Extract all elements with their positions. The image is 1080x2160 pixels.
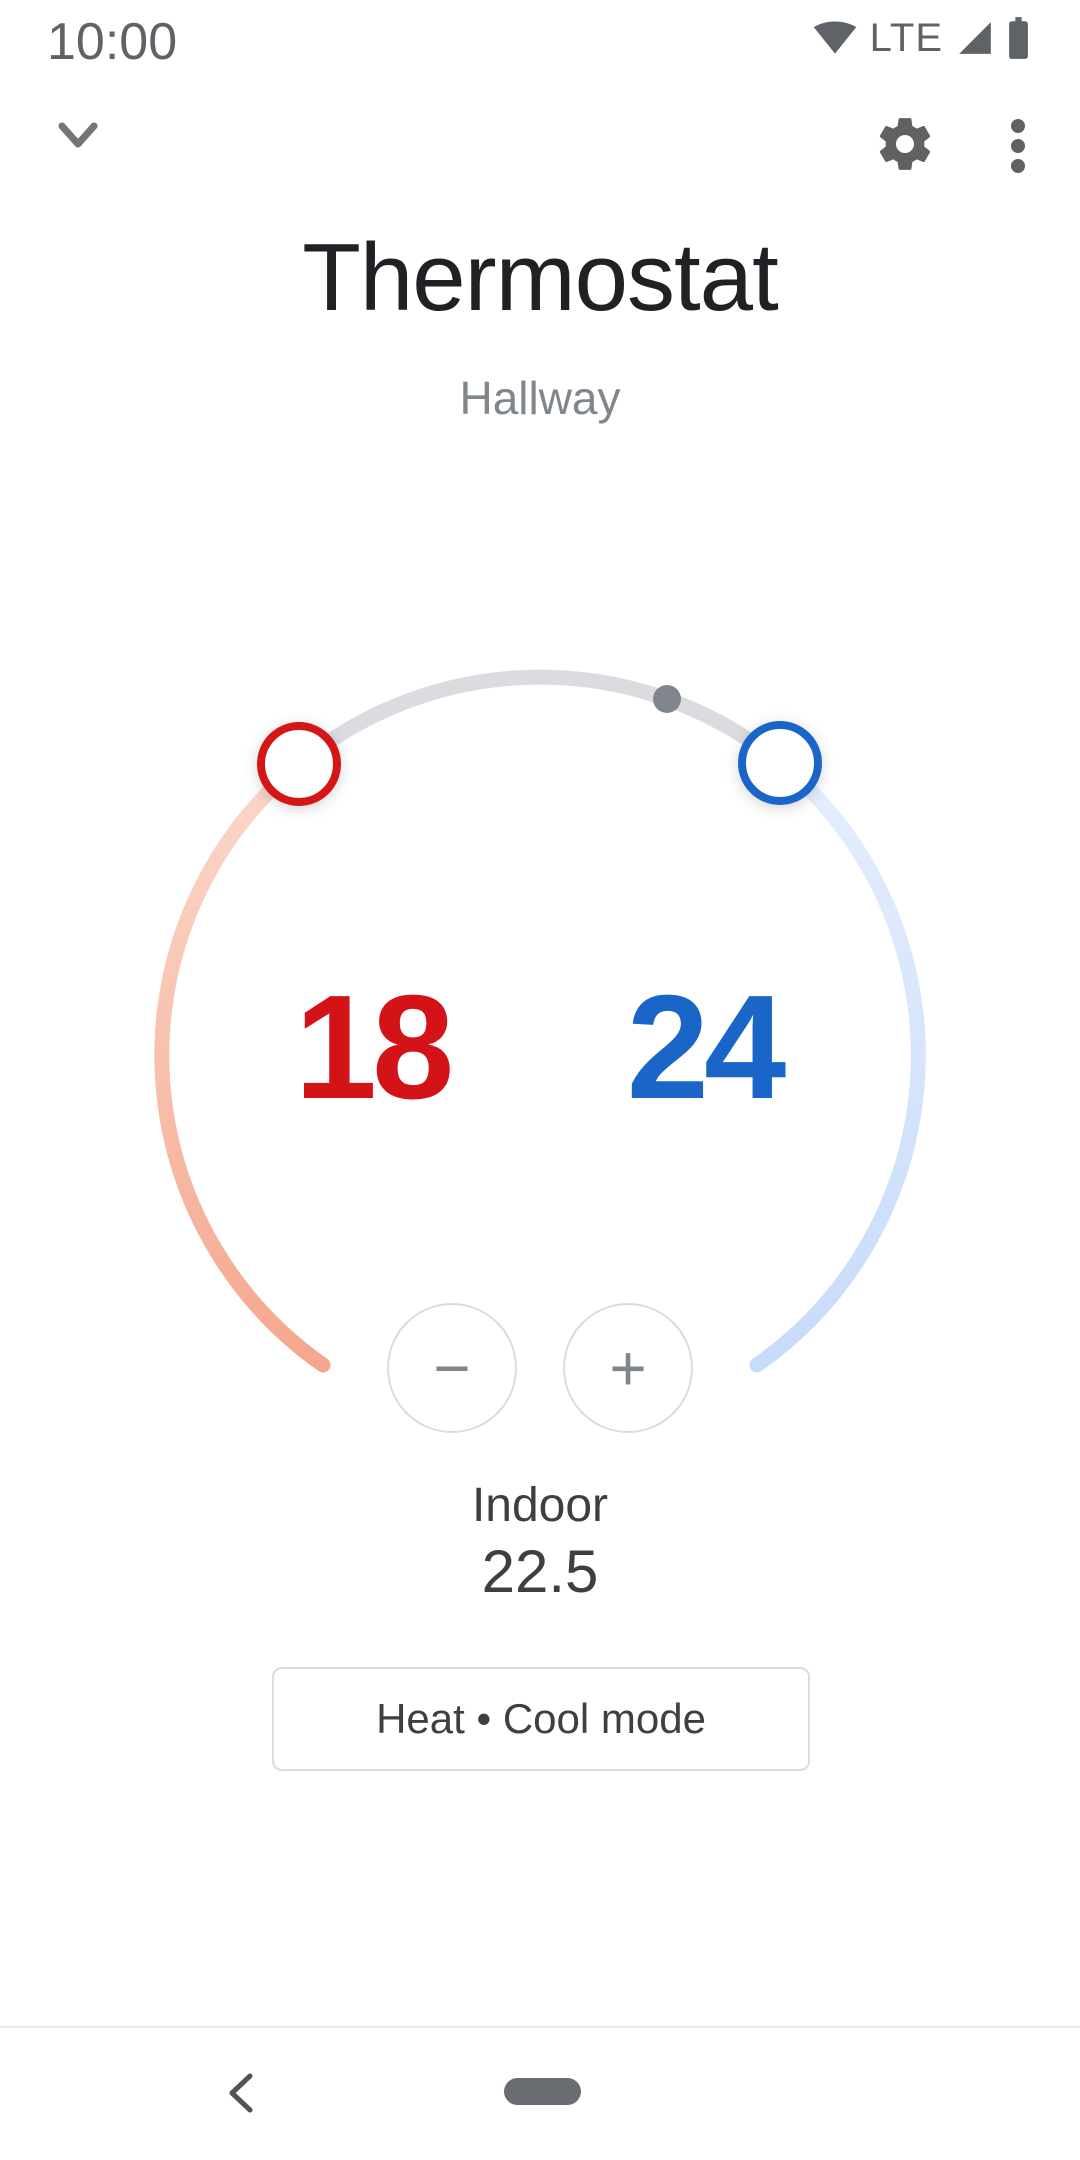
nav-divider: [0, 2026, 1080, 2028]
mode-button-label: Heat • Cool mode: [376, 1695, 706, 1743]
three-dot-icon: [988, 108, 1048, 184]
status-icons: LTE: [813, 10, 1030, 66]
current-temp-dot: [653, 685, 681, 713]
collapse-button[interactable]: [48, 112, 108, 172]
overflow-menu-button[interactable]: [988, 108, 1048, 184]
indoor-temp-value: 22.5: [0, 1540, 1080, 1604]
cool-handle[interactable]: [742, 725, 818, 801]
decrease-temp-button[interactable]: −: [387, 1303, 517, 1433]
battery-icon: [1007, 17, 1030, 59]
status-time: 10:00: [47, 12, 177, 72]
thermostat-screen: 10:00 LTE Thermostat Hallway: [0, 0, 1080, 2160]
chevron-down-icon: [48, 112, 108, 172]
plus-icon: +: [609, 1336, 646, 1400]
home-gesture-pill[interactable]: [504, 2078, 581, 2105]
dial-track-arc: [299, 677, 780, 764]
minus-icon: −: [433, 1336, 470, 1400]
gear-icon: [874, 113, 936, 175]
heat-handle[interactable]: [261, 726, 337, 802]
page-title: Thermostat: [0, 228, 1080, 328]
increase-temp-button[interactable]: +: [563, 1303, 693, 1433]
room-subtitle: Hallway: [0, 372, 1080, 424]
cool-setpoint-value: 24: [627, 974, 782, 1122]
chevron-left-icon: [210, 2062, 270, 2122]
settings-button[interactable]: [870, 110, 940, 180]
nav-back-button[interactable]: [210, 2062, 270, 2122]
mode-button[interactable]: Heat • Cool mode: [272, 1667, 810, 1771]
indoor-label: Indoor: [0, 1480, 1080, 1532]
network-type-label: LTE: [870, 16, 943, 61]
cell-signal-icon: [956, 19, 994, 57]
heat-setpoint-value: 18: [295, 974, 450, 1122]
wifi-icon: [813, 21, 857, 55]
